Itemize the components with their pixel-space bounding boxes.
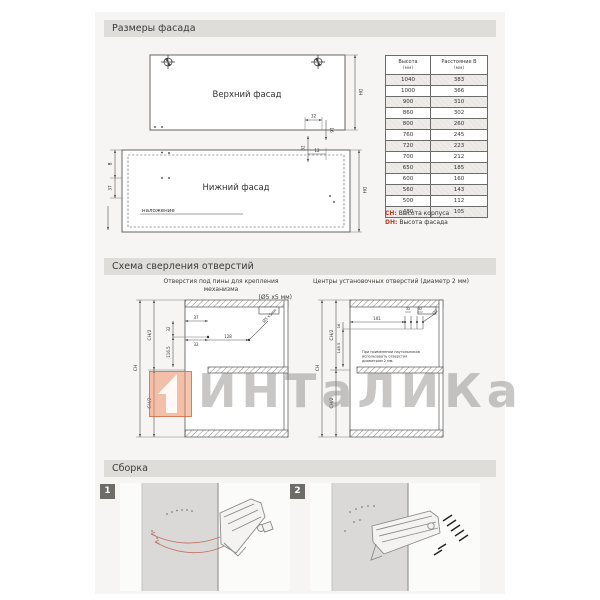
drilling-diagram-centers: CH CH/2 CH/2 101 32 32 Ø2 16 148.5 При п… [310, 296, 474, 454]
cell-height: 600 [386, 174, 431, 185]
section-title: Схема сверления отверстий [112, 261, 254, 272]
upper-facade-label: Верхний фасад [212, 90, 281, 100]
assembly-step-1-illustration [120, 483, 290, 591]
facade-size-table: Высота(мм) Расстояние B(мм) 1040 383 100… [385, 55, 488, 218]
dim-32-v: 32 [301, 145, 306, 151]
cell-distance: 223 [431, 141, 488, 152]
dim-ch: CH [315, 365, 321, 372]
cell-distance: 160 [431, 174, 488, 185]
step-2-badge: 2 [290, 484, 305, 499]
dim-16: 16 [329, 127, 334, 133]
table-row: 800 260 [386, 119, 488, 130]
cell-height: 650 [386, 163, 431, 174]
table-row: 560 143 [386, 185, 488, 196]
table-row: 1000 366 [386, 86, 488, 97]
dim-ch: CH [133, 365, 139, 372]
assembly-step-2-illustration [310, 483, 480, 591]
table-row: 700 212 [386, 152, 488, 163]
table-row: 760 245 [386, 130, 488, 141]
cabinet-bottom-panel [185, 430, 288, 437]
table-row: 900 310 [386, 97, 488, 108]
dim-s1: 32 [406, 307, 411, 311]
cabinet-panel [142, 483, 218, 591]
cell-height: 760 [386, 130, 431, 141]
note-line-2: использовать отверстия [362, 355, 407, 359]
cell-distance: 112 [431, 196, 488, 207]
cabinet-top-panel [350, 300, 443, 307]
dim-ch2: CH/2 [147, 329, 153, 340]
step-1-badge: 1 [100, 484, 115, 499]
section-header-drilling: Схема сверления отверстий [104, 258, 496, 275]
cell-distance: 302 [431, 108, 488, 119]
section-title: Сборка [112, 463, 148, 474]
facade-drawing: Верхний фасад DH 32 16 Нижний фасад 32 1… [100, 40, 380, 252]
dim-top: 37 [193, 315, 199, 320]
legend-text-ch: Высота корпуса [399, 210, 449, 217]
cell-distance: 212 [431, 152, 488, 163]
table-row: 650 185 [386, 163, 488, 174]
drilling-right-caption: Центры установочных отверстий (диаметр 2… [310, 278, 472, 286]
legend-key-ch: CH: [385, 210, 397, 217]
cell-distance: 185 [431, 163, 488, 174]
col-header-distance: Расстояние B(мм) [431, 56, 488, 75]
section-title: Размеры фасада [112, 23, 196, 34]
legend-text-dh: Высота фасада [399, 219, 448, 226]
cell-height: 1040 [386, 75, 431, 86]
dim-b: B [108, 162, 114, 165]
cell-distance: 383 [431, 75, 488, 86]
table-row: 1040 383 [386, 75, 488, 86]
note-line-1: При применении наугольников [362, 350, 420, 354]
dim-ch2: CH/2 [329, 397, 335, 408]
cell-distance: 143 [431, 185, 488, 196]
dim-h1: 32 [193, 342, 199, 347]
cell-distance: 260 [431, 119, 488, 130]
dim-v2: 148.5 [336, 342, 341, 353]
dim-12: 12 [314, 148, 320, 153]
dim-dh-upper: DH [357, 89, 363, 96]
dim-ch2: CH/2 [329, 329, 335, 340]
dim-dh-lower: DH [361, 187, 367, 194]
dim-v2: 116.5 [166, 346, 171, 358]
dim-32: 32 [311, 114, 317, 119]
cell-height: 860 [386, 108, 431, 119]
cell-height: 720 [386, 141, 431, 152]
legend-key-dh: DH: [385, 219, 397, 226]
cell-height: 700 [386, 152, 431, 163]
dim-37: 37 [108, 185, 113, 191]
lower-facade-label: Нижний фасад [202, 183, 269, 193]
cabinet-top-panel [185, 300, 288, 307]
drilling-diagram-pins: CH CH/2 CH/2 37 32 116.5 32 128 Ø5 х5мм [128, 296, 292, 454]
cell-height: 500 [386, 196, 431, 207]
dim-v1: 16 [336, 323, 341, 328]
cell-height: 800 [386, 119, 431, 130]
overlay-label: наложение [142, 208, 175, 214]
cell-height: 1000 [386, 86, 431, 97]
cell-distance: 310 [431, 97, 488, 108]
table-row: 860 302 [386, 108, 488, 119]
cabinet-bottom-panel [350, 430, 443, 437]
catalog-page: Размеры фасада Верхний фасад DH [0, 0, 600, 600]
dim-h2: 128 [224, 334, 232, 339]
table-row: 720 223 [386, 141, 488, 152]
table-row: 600 160 [386, 174, 488, 185]
table-legend: CH: Высота корпуса DH: Высота фасада [385, 209, 449, 227]
cabinet-shelf [208, 367, 288, 373]
section-header-assembly: Сборка [104, 460, 496, 477]
dim-ch2: CH/2 [147, 397, 153, 408]
dim-v1: 32 [166, 326, 171, 332]
col-header-height: Высота(мм) [386, 56, 431, 75]
cell-distance: 245 [431, 130, 488, 141]
table-row: 500 112 [386, 196, 488, 207]
section-header-facade: Размеры фасада [104, 20, 496, 37]
dim-s2: 32 [418, 307, 423, 311]
cell-height: 900 [386, 97, 431, 108]
note-line-3: диаметром 2 мм. [362, 359, 394, 363]
cell-distance: 366 [431, 86, 488, 97]
cell-height: 560 [386, 185, 431, 196]
cabinet-shelf [357, 367, 443, 373]
dim-101: 101 [373, 316, 381, 321]
